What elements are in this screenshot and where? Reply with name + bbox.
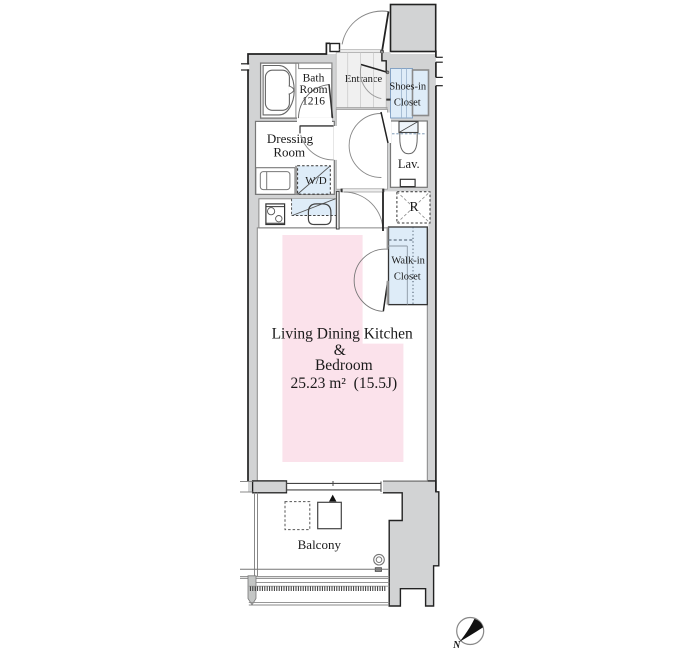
svg-text:25.23 m² (15.5J): 25.23 m² (15.5J) bbox=[290, 375, 397, 392]
svg-text:N: N bbox=[452, 640, 461, 650]
svg-text:W/D: W/D bbox=[305, 175, 326, 187]
svg-text:Living Dining Kitchen: Living Dining Kitchen bbox=[272, 326, 413, 343]
svg-text:Lav.: Lav. bbox=[398, 157, 420, 171]
svg-text:Closet: Closet bbox=[394, 98, 421, 109]
svg-text:Room: Room bbox=[299, 84, 327, 96]
svg-text:Room: Room bbox=[273, 145, 305, 160]
svg-text:Balcony: Balcony bbox=[298, 537, 342, 552]
svg-text:Shoes-in: Shoes-in bbox=[389, 82, 427, 93]
svg-text:1216: 1216 bbox=[302, 96, 325, 108]
svg-text:Entrance: Entrance bbox=[345, 74, 383, 85]
svg-text:Closet: Closet bbox=[394, 272, 421, 283]
svg-text:R: R bbox=[409, 199, 418, 214]
svg-text:Walk-in: Walk-in bbox=[391, 256, 425, 267]
svg-text:Bath: Bath bbox=[303, 73, 325, 85]
svg-text:Bedroom: Bedroom bbox=[315, 357, 373, 374]
